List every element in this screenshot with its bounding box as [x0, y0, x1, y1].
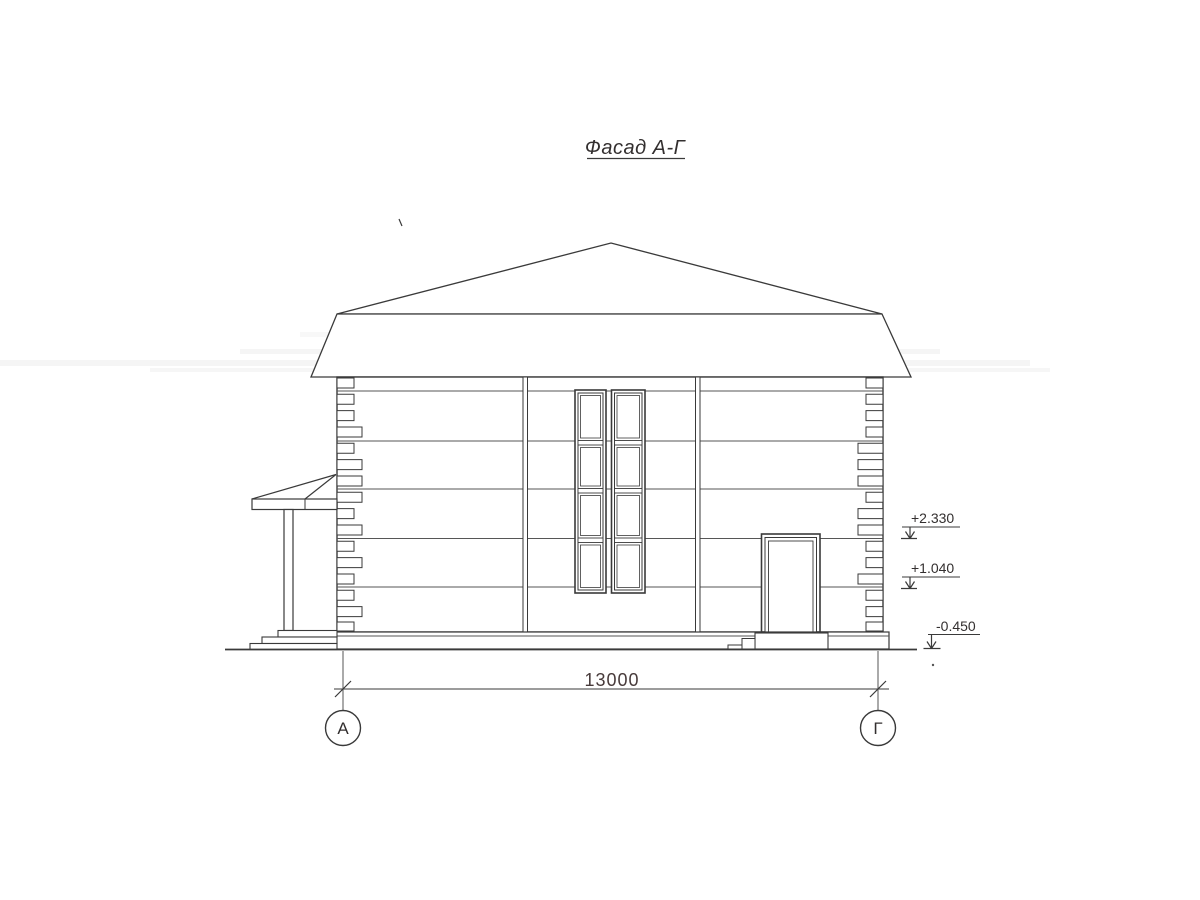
window-muntin	[615, 441, 643, 446]
window-right	[612, 390, 646, 593]
scan-speck	[932, 664, 934, 666]
title-text: Фасад А-Г	[585, 137, 687, 159]
window-muntin	[578, 538, 603, 543]
roof-slope-trapezoid	[311, 314, 911, 377]
roof	[311, 243, 911, 377]
door	[762, 534, 821, 632]
level-mark-eave: +2.330	[901, 510, 960, 539]
axis-marker-a: А	[326, 711, 361, 746]
drawing-title: Фасад А-Г	[585, 137, 687, 159]
window-muntin	[615, 538, 643, 543]
canopy-fascia	[252, 499, 337, 510]
wall-trim-board-right	[696, 377, 701, 632]
level-value: +2.330	[911, 510, 954, 526]
level-value: -0.450	[936, 618, 976, 634]
door-inner-frame	[765, 538, 817, 633]
axis-marker-g: Г	[861, 711, 896, 746]
level-arrow	[901, 577, 917, 589]
window-left	[575, 390, 606, 593]
porch-column	[284, 510, 293, 631]
porch-step-top	[278, 631, 337, 638]
level-mark-mid: +1.040	[901, 560, 960, 589]
drawing-sheet: Фасад А-Г	[0, 0, 1200, 900]
canopy-edge	[252, 475, 336, 500]
scan-speck	[399, 219, 402, 226]
door-step	[742, 639, 755, 650]
canopy-hip-edge	[305, 475, 336, 500]
window-muntin	[578, 441, 603, 446]
porch-step-middle	[262, 637, 337, 644]
level-arrow	[924, 635, 941, 649]
door-step	[728, 645, 742, 649]
dimension-13000: 13000	[334, 651, 889, 711]
level-arrow	[901, 527, 917, 539]
roof-hip-triangle	[337, 243, 882, 314]
window-muntin	[615, 489, 643, 494]
axis-label-g: Г	[873, 719, 882, 738]
level-mark-ground: -0.450	[924, 618, 981, 649]
porch-step-bottom	[250, 644, 337, 650]
door-stoop	[755, 633, 828, 649]
level-value: +1.040	[911, 560, 954, 576]
wall-trim-board-left	[523, 377, 528, 632]
dimension-value: 13000	[584, 670, 639, 690]
porch	[250, 475, 337, 650]
window-muntin	[578, 489, 603, 494]
axis-label-a: А	[337, 719, 349, 738]
facade-elevation-drawing: Фасад А-Г	[0, 0, 1200, 900]
